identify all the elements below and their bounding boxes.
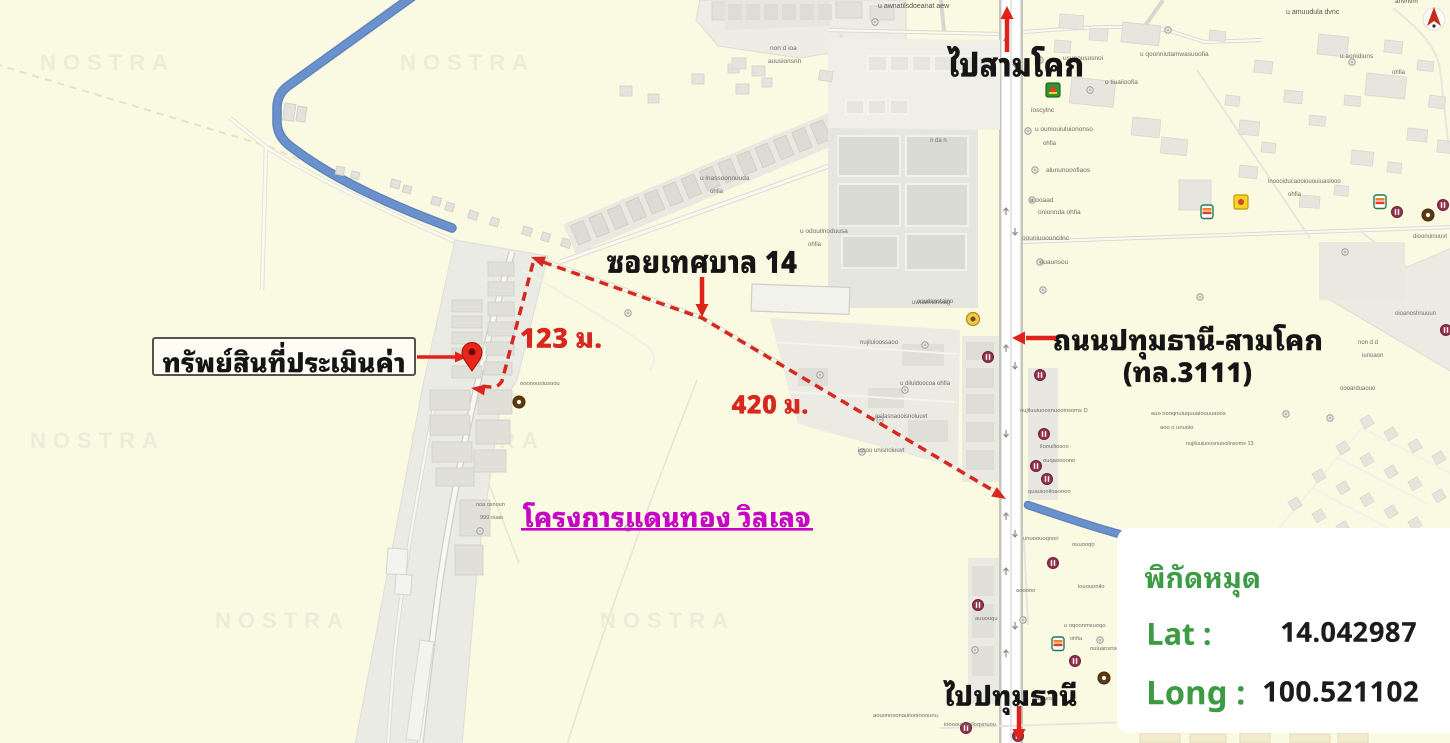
svg-text:iloouiliosoo: iloouiliosoo: [1040, 444, 1069, 450]
svg-text:auo nooqnuiuquuaiouuuaoos: auo nooqnuiuquuaiouuuaoos: [1151, 411, 1226, 417]
svg-text:o tiuaiioofia: o tiuaiioofia: [1105, 79, 1138, 86]
svg-text:nujiluuiuoosnuooinsoms D: nujiluuiuoosnuooinsoms D: [1020, 408, 1088, 414]
svg-text:aooono: aooono: [1016, 588, 1035, 594]
svg-text:u odouilnoduusa: u odouilnoduusa: [800, 228, 848, 235]
svg-text:ohfia: ohfia: [1288, 192, 1302, 198]
svg-text:oioanoshnuuun: oioanoshnuuun: [1395, 311, 1436, 317]
svg-text:999 ouao: 999 ouao: [480, 515, 503, 521]
svg-text:non d d: non d d: [1358, 340, 1378, 346]
svg-text:oooarduaouo: oooarduaouo: [1340, 386, 1376, 392]
svg-text:quauiooiloaoooo: quauiooiloaoooo: [1028, 489, 1071, 495]
svg-text:NOSTRA: NOSTRA: [215, 608, 350, 633]
svg-text:NOSTRA: NOSTRA: [30, 428, 165, 453]
svg-text:iunoaon: iunoaon: [1362, 353, 1383, 359]
svg-text:ohfia: ohfia: [1070, 636, 1083, 642]
svg-text:u lnassoonnuuda: u lnassoonnuuda: [700, 175, 750, 182]
svg-text:ohfia: ohfia: [710, 189, 724, 195]
svg-text:suaunsou: suaunsou: [1040, 259, 1069, 266]
svg-text:u ouniouiuluiononso: u ouniouiuluiononso: [1035, 126, 1093, 133]
svg-text:iosou unisnoiuuvt: iosou unisnoiuuvt: [858, 448, 905, 454]
svg-text:noa osnoun: noa osnoun: [476, 502, 505, 508]
svg-text:ooudanstaino: ooudanstaino: [917, 299, 954, 305]
svg-text:NOSTRA: NOSTRA: [600, 608, 735, 633]
svg-text:asilasnaooisnoiuuvt: asilasnaooisnoiuuvt: [875, 414, 928, 420]
svg-text:NOSTRA: NOSTRA: [400, 50, 535, 75]
svg-text:ioscylnc: ioscylnc: [1031, 107, 1055, 114]
svg-text:non d ioa: non d ioa: [770, 45, 797, 52]
svg-text:u diluidoocoa ohfia: u diluidoocoa ohfia: [900, 381, 951, 387]
svg-text:oouniuoouncilnc: oouniuoouncilnc: [1022, 235, 1070, 242]
svg-text:ohfia: ohfia: [1392, 70, 1406, 76]
svg-text:lnoooiducaooiououiuaslooo: lnoooiducaooiououiuaslooo: [1268, 179, 1341, 185]
svg-text:ioooouoqoiloqsnuou: ioooouoqoiloqsnuou: [944, 722, 996, 728]
svg-text:nujiluuiuoosnuooilnsoms 13: nujiluuiuoosnuooilnsoms 13: [1186, 441, 1254, 447]
svg-text:alununooofiaos: alununooofiaos: [1046, 167, 1091, 174]
svg-text:u awnatilsdoeanat aew: u awnatilsdoeanat aew: [878, 3, 950, 10]
svg-text:u qoonniutamwasuoofia: u qoonniutamwasuoofia: [1140, 51, 1209, 58]
svg-text:onionnda ohfia: onionnda ohfia: [1038, 209, 1081, 216]
svg-text:u ooaad: u ooaad: [1030, 197, 1054, 204]
svg-text:ohfia: ohfia: [1043, 141, 1057, 147]
svg-text:aoo o unuoio: aoo o unuoio: [1160, 425, 1194, 431]
svg-text:NOSTRA: NOSTRA: [40, 50, 175, 75]
svg-text:u amuudula dvnc: u amuudula dvnc: [1286, 9, 1340, 16]
svg-text:aouonnsonauiloniooounu: aouonnsonauiloniooounu: [873, 713, 938, 719]
svg-text:n da n: n da n: [930, 138, 947, 144]
svg-text:u aonidiuns: u aonidiuns: [1340, 53, 1374, 60]
svg-text:ohfia: ohfia: [808, 242, 822, 248]
svg-text:iououonilo: iououonilo: [1078, 584, 1104, 590]
svg-text:unuoouoqnon: unuoouoqnon: [1023, 536, 1058, 542]
svg-text:nujiluioossaoo: nujiluioossaoo: [860, 340, 899, 346]
svg-text:auuouqu: auuouqu: [975, 616, 998, 622]
svg-text:anvnvm: anvnvm: [1395, 0, 1418, 5]
svg-text:auusionsnn: auusionsnn: [768, 58, 802, 65]
svg-text:ouuooqo: ouuooqo: [1072, 542, 1095, 548]
svg-text:ouqaoooono: ouqaoooono: [1043, 458, 1075, 464]
svg-text:u oqoonmsuoqo: u oqoonmsuoqo: [1064, 623, 1106, 629]
svg-text:dioonoinuuvt: dioonoinuuvt: [1413, 234, 1447, 240]
svg-text:ooonouoiusoou: ooonouoiusoou: [520, 381, 560, 387]
svg-text:ouiuansnso: ouiuansnso: [1090, 646, 1120, 652]
